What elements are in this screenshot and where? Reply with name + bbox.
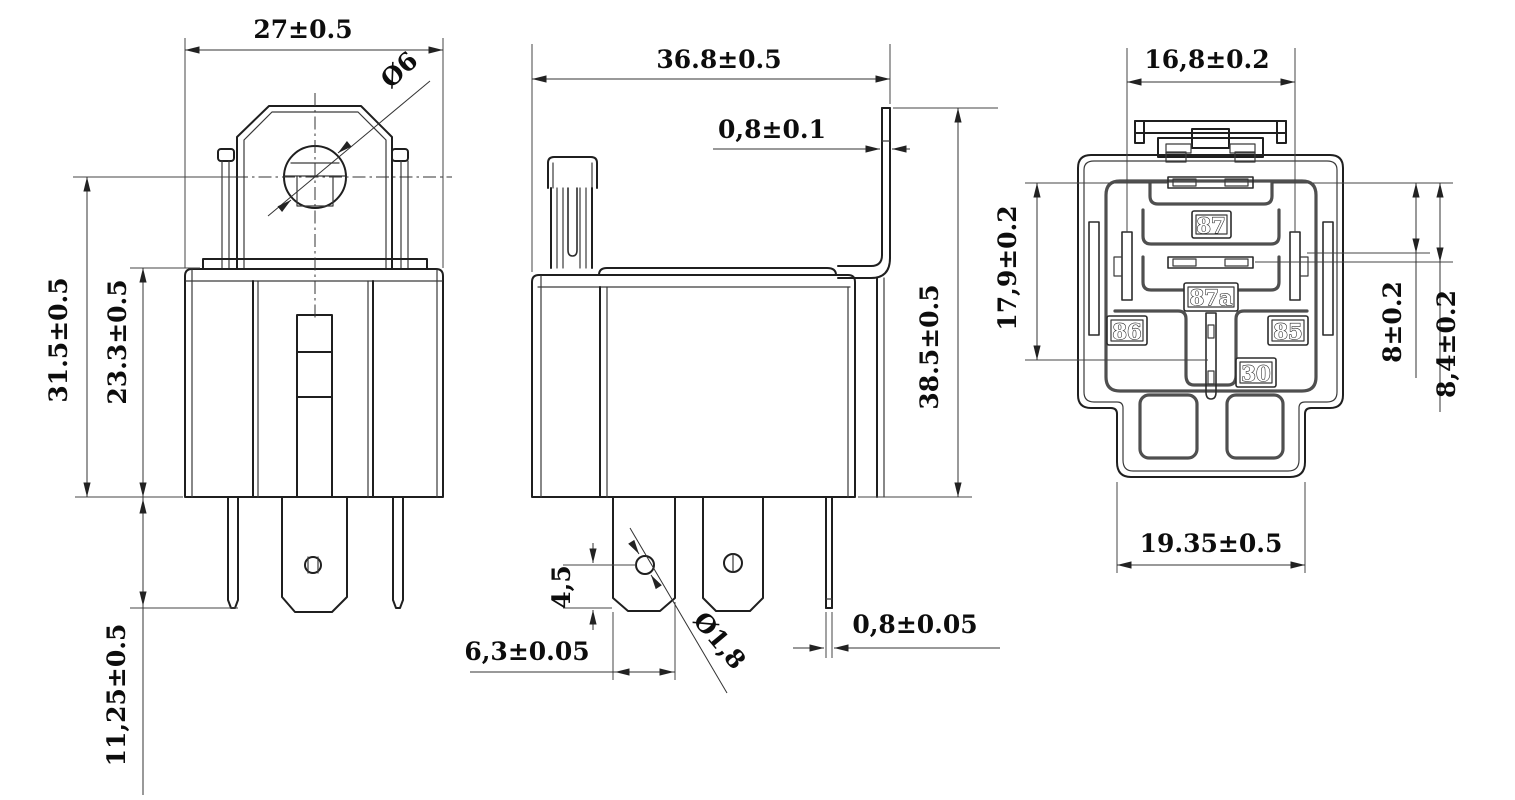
dim-pin-offset-b: 8,4±0.2 [1432, 290, 1461, 398]
terminal-with-hole-side [613, 497, 675, 611]
dim-bracket-thickness: 0,8±0.1 [718, 115, 826, 144]
dim-pin-span-height: 17,9±0.2 [993, 205, 1022, 330]
dim-pin-span-width: 16,8±0.2 [1144, 45, 1269, 74]
terminal-pin-center [282, 497, 347, 612]
dim-side-height: 38.5±0.5 [915, 284, 944, 409]
relay-technical-drawing: 27±0.5 Ø6 31.5±0.5 23.3±0.5 11,25±0.5 [0, 0, 1515, 800]
terminal-87: 87 [1196, 213, 1225, 238]
bracket-section-bar [1135, 121, 1286, 133]
dim-side-width: 36.8±0.5 [656, 45, 781, 74]
terminal-30: 30 [1241, 361, 1270, 386]
terminal-86: 86 [1112, 319, 1141, 344]
bracket-ear-left [218, 149, 234, 161]
blade-85 [1290, 232, 1300, 300]
base-square-left [1140, 395, 1197, 458]
drawing-canvas: 27±0.5 Ø6 31.5±0.5 23.3±0.5 11,25±0.5 [0, 0, 1515, 800]
relay-body-side [532, 275, 855, 497]
dim-mount-hole: Ø6 [375, 46, 423, 94]
dim-terminal-thickness: 0,8±0.05 [852, 610, 977, 639]
blade-86 [1122, 232, 1132, 300]
bracket-ear-right [392, 149, 408, 161]
dim-hole-offset: 4,5 [547, 565, 576, 609]
terminal-pin-right [393, 497, 403, 608]
spring-clip-cap [548, 157, 597, 188]
dim-terminal-length: 11,25±0.5 [102, 624, 131, 767]
center-column [297, 315, 332, 497]
dim-total-height: 31.5±0.5 [44, 277, 73, 402]
side-slot-right [1323, 222, 1333, 335]
dim-front-width: 27±0.5 [253, 15, 352, 44]
clip-slot [568, 188, 577, 256]
dim-pin-offset-a: 8±0.2 [1378, 281, 1407, 363]
front-view: 27±0.5 Ø6 31.5±0.5 23.3±0.5 11,25±0.5 [44, 15, 452, 795]
terminal-pin-left [228, 497, 238, 608]
terminal-85: 85 [1273, 319, 1302, 344]
terminal-87a: 87a [1190, 285, 1233, 310]
dim-base-width: 19.35±0.5 [1140, 529, 1283, 558]
side-view: 36.8±0.5 0,8±0.1 38.5±0.5 4,5 6,3±0.05 Ø… [464, 44, 1000, 693]
dim-terminal-hole: Ø1,8 [687, 606, 751, 675]
top-plate-side [599, 268, 836, 275]
side-slot-left [1089, 222, 1099, 335]
base-square-right [1227, 395, 1283, 458]
relay-body-front [185, 269, 443, 497]
bottom-view: 87 87a 86 85 30 16,8±0.2 17,9±0.2 8±0.2 [993, 45, 1461, 573]
dim-body-height: 23.3±0.5 [103, 279, 132, 404]
dim-terminal-width: 6,3±0.05 [464, 637, 589, 666]
